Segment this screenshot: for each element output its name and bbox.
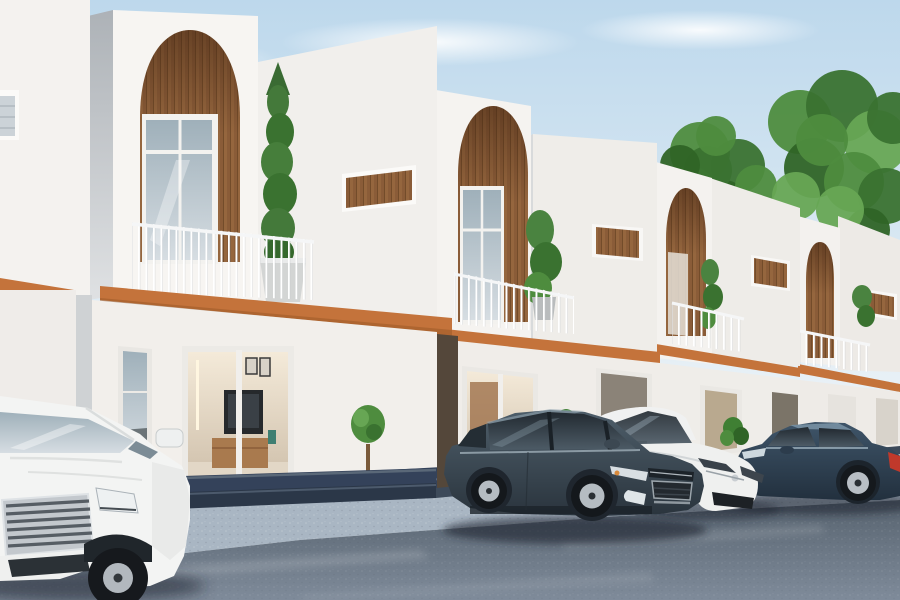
car-slate-shadow [443, 516, 707, 544]
house4-slot-window [751, 255, 790, 291]
foliage-blob [796, 114, 848, 166]
house1-sliding-door [182, 346, 294, 486]
topiary-trunk [366, 444, 370, 474]
house5-door [876, 398, 898, 446]
car-blue-mirror [780, 446, 794, 454]
house1-arch-tower-side [88, 10, 113, 300]
car-slate-mirror [604, 439, 620, 449]
interior-lamp [196, 360, 199, 430]
house0-wall [0, 0, 90, 302]
car-white-mirror [156, 429, 183, 447]
car-slate-headlight-amber [615, 471, 620, 476]
door1-mullion [236, 350, 242, 482]
interior-tv-screen [228, 394, 259, 428]
car-slate-chrome-lip [654, 502, 690, 503]
car-white-side-panel [152, 462, 190, 560]
interior-wall-frame [246, 358, 257, 374]
interior-vase [268, 430, 276, 444]
car-blue-hub [855, 480, 862, 487]
house0-slot-window [0, 90, 19, 140]
render-image [0, 0, 900, 600]
interior-wall-frame2 [260, 358, 270, 376]
car-white-hub [114, 574, 123, 583]
scene-canvas [0, 0, 900, 600]
foliage-blob [696, 116, 736, 156]
house3-slot-window [592, 224, 643, 261]
